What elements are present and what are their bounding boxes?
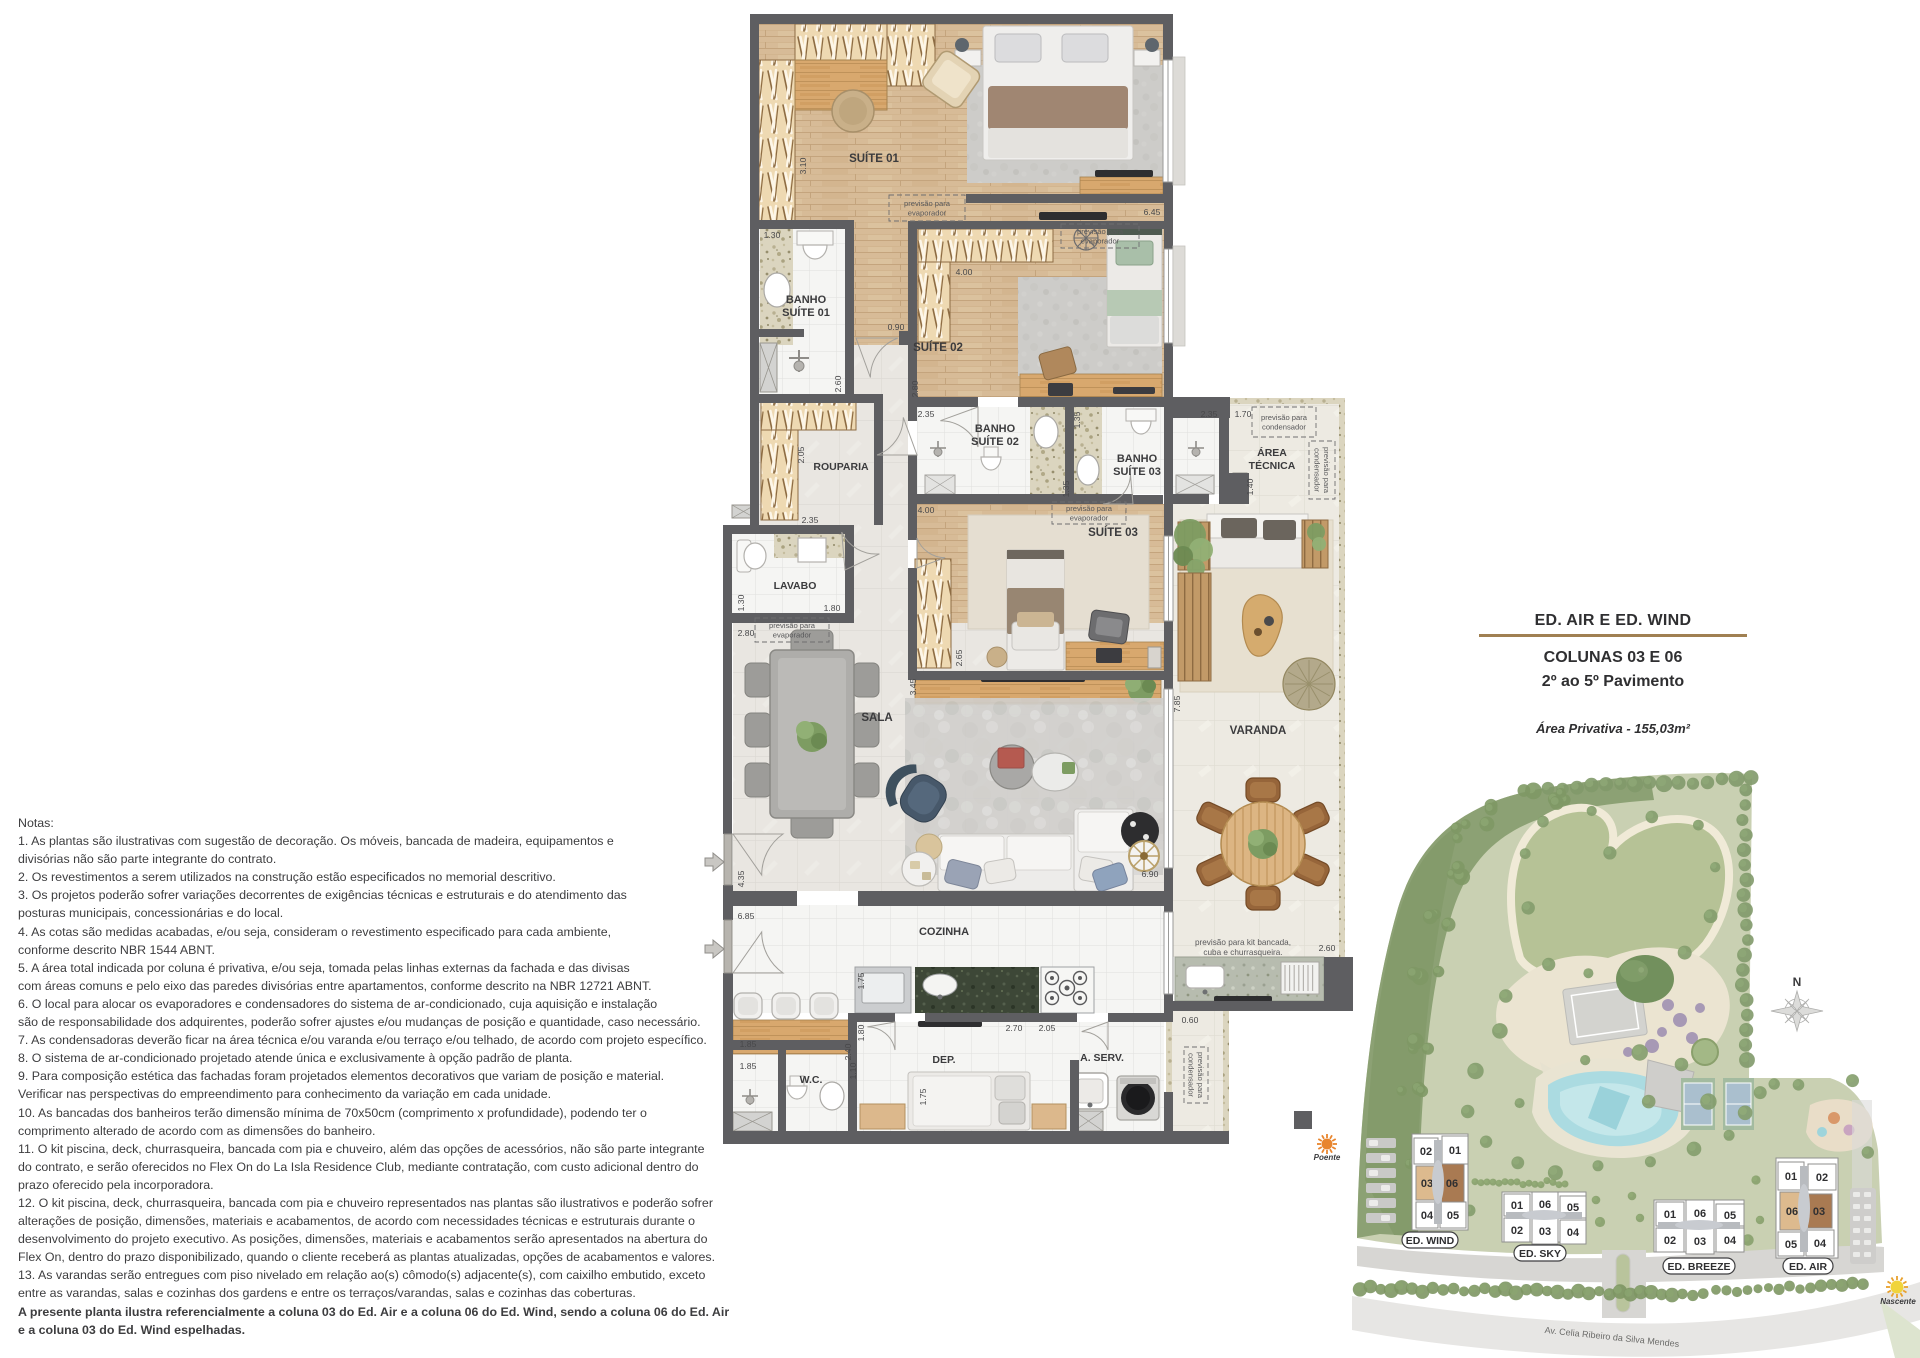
svg-text:1.30: 1.30 <box>764 230 781 240</box>
svg-text:6.90: 6.90 <box>1142 869 1159 879</box>
svg-text:cuba e churrasqueira.: cuba e churrasqueira. <box>1203 948 1282 957</box>
svg-text:previsão para: previsão para <box>1322 447 1331 494</box>
svg-text:1.35: 1.35 <box>1061 480 1071 497</box>
svg-text:1.70: 1.70 <box>1235 409 1252 419</box>
svg-text:evaporador: evaporador <box>1081 236 1120 245</box>
svg-text:BANHO: BANHO <box>786 294 827 306</box>
svg-text:SUÍTE 02: SUÍTE 02 <box>913 341 963 354</box>
svg-text:1.35: 1.35 <box>1072 411 1082 428</box>
svg-text:4.00: 4.00 <box>956 267 973 277</box>
svg-text:2.40: 2.40 <box>843 1043 853 1060</box>
svg-text:previsão para: previsão para <box>1066 504 1113 513</box>
svg-text:2.60: 2.60 <box>1319 943 1336 953</box>
svg-text:3.10: 3.10 <box>798 157 808 174</box>
svg-text:evaporador: evaporador <box>773 630 812 639</box>
svg-text:1.30: 1.30 <box>736 594 746 611</box>
svg-text:ÁREA: ÁREA <box>1257 446 1287 459</box>
svg-text:SUÍTE 01: SUÍTE 01 <box>782 306 830 319</box>
svg-text:previsão para: previsão para <box>1261 413 1308 422</box>
svg-text:previsão para: previsão para <box>904 199 951 208</box>
svg-text:1.40: 1.40 <box>1245 478 1255 495</box>
svg-text:2.05: 2.05 <box>796 446 806 463</box>
svg-text:4.00: 4.00 <box>918 505 935 515</box>
svg-text:2.35: 2.35 <box>1201 409 1218 419</box>
svg-text:condensador: condensador <box>1262 422 1306 431</box>
svg-text:0.60: 0.60 <box>1182 1015 1199 1025</box>
svg-text:2.60: 2.60 <box>833 375 843 392</box>
svg-text:2.35: 2.35 <box>918 409 935 419</box>
svg-text:SUÍTE 03: SUÍTE 03 <box>1113 465 1161 478</box>
svg-text:BANHO: BANHO <box>975 423 1016 435</box>
svg-text:evaporador: evaporador <box>1070 513 1109 522</box>
svg-text:1.75: 1.75 <box>918 1088 928 1105</box>
svg-text:6.45: 6.45 <box>1144 207 1161 217</box>
svg-text:LAVABO: LAVABO <box>774 580 817 592</box>
svg-text:COZINHA: COZINHA <box>919 926 969 938</box>
svg-text:0.90: 0.90 <box>888 322 905 332</box>
svg-text:W.C.: W.C. <box>800 1074 823 1086</box>
svg-text:2.80: 2.80 <box>910 380 920 397</box>
svg-text:SUÍTE 01: SUÍTE 01 <box>849 152 899 165</box>
svg-text:evaporador: evaporador <box>908 208 947 217</box>
svg-text:previsão para: previsão para <box>1077 227 1124 236</box>
svg-text:2.05: 2.05 <box>1039 1023 1056 1033</box>
svg-text:SUÍTE 02: SUÍTE 02 <box>971 435 1019 448</box>
svg-text:3.45: 3.45 <box>908 678 918 695</box>
svg-text:TÉCNICA: TÉCNICA <box>1249 459 1296 472</box>
svg-text:2.65: 2.65 <box>954 649 964 666</box>
svg-text:7.85: 7.85 <box>1172 695 1182 712</box>
svg-text:ROUPARIA: ROUPARIA <box>813 461 869 473</box>
svg-text:DEP.: DEP. <box>932 1054 955 1066</box>
svg-text:previsão para kit bancada,: previsão para kit bancada, <box>1195 938 1291 947</box>
svg-text:2.70: 2.70 <box>1006 1023 1023 1033</box>
svg-text:1.75: 1.75 <box>856 972 866 989</box>
svg-text:1.80: 1.80 <box>856 1024 866 1041</box>
svg-text:SALA: SALA <box>861 712 892 724</box>
svg-text:condensador: condensador <box>1187 1053 1196 1097</box>
svg-text:2.35: 2.35 <box>802 515 819 525</box>
svg-text:1.10: 1.10 <box>848 1062 858 1079</box>
svg-text:previsão para: previsão para <box>1196 1052 1205 1099</box>
svg-text:previsão para: previsão para <box>769 621 816 630</box>
svg-text:condensador: condensador <box>1313 448 1322 492</box>
svg-text:SUÍTE 03: SUÍTE 03 <box>1088 526 1138 539</box>
svg-text:A. SERV.: A. SERV. <box>1080 1052 1124 1064</box>
svg-text:1.80: 1.80 <box>824 603 841 613</box>
svg-text:BANHO: BANHO <box>1117 453 1158 465</box>
svg-text:2.80: 2.80 <box>738 628 755 638</box>
svg-text:VARANDA: VARANDA <box>1230 725 1287 737</box>
